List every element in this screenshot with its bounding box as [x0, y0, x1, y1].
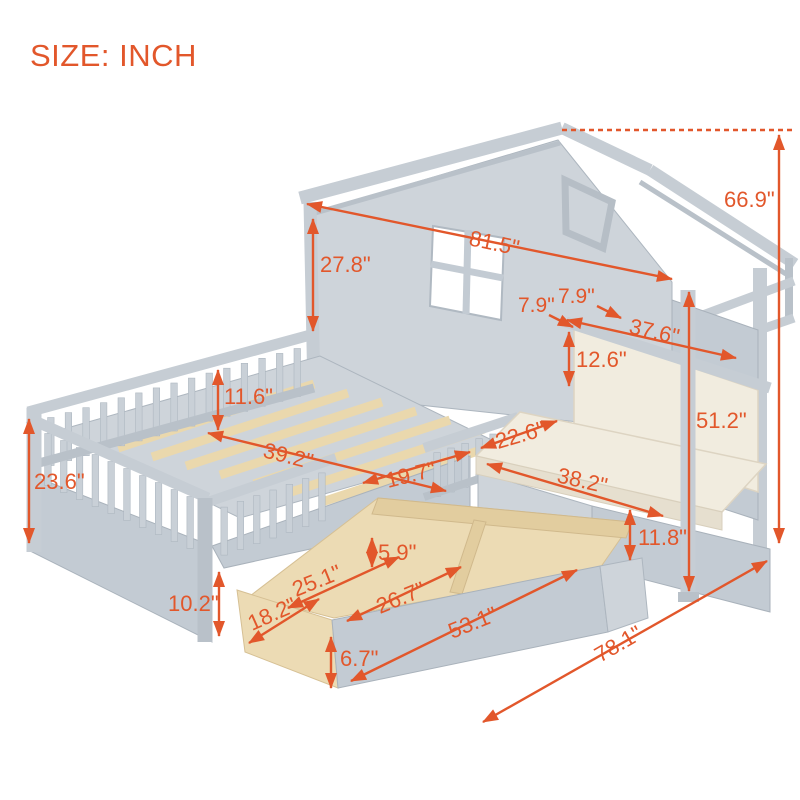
- dim-shelf-depth-a: 7.9": [518, 294, 555, 317]
- rail-baluster: [108, 462, 115, 514]
- rail-baluster: [319, 473, 326, 521]
- dim-backrest-height: 12.6": [576, 347, 627, 372]
- dim-bench-height: 51.2": [696, 408, 747, 433]
- dim-bench-base-height: 11.8": [638, 525, 687, 550]
- rail-baluster: [92, 455, 99, 507]
- drawer-right-cap: [600, 558, 648, 632]
- rail-baluster: [124, 469, 131, 521]
- rail-baluster: [286, 484, 293, 532]
- product-dimension-diagram: SIZE: INCH: [0, 0, 800, 800]
- dim-rail-height: 11.6": [224, 384, 273, 409]
- rail-baluster: [187, 497, 194, 549]
- rail-baluster: [270, 490, 277, 538]
- dim-clearance-height: 10.2": [168, 591, 219, 616]
- rail-baluster: [254, 496, 261, 544]
- rail-baluster: [302, 479, 309, 527]
- bed-diagram-illustration: 66.9" 81.5" 27.8" 7.9" 7.9" 37.6" 12.6" …: [0, 0, 800, 800]
- roof-beam-right: [650, 170, 795, 264]
- rail-baluster: [155, 483, 162, 535]
- dim-gable-height: 27.8": [320, 252, 371, 277]
- dim-overall-height: 66.9": [724, 187, 775, 212]
- dim-shelf-depth-b: 7.9": [558, 285, 595, 308]
- rail-baluster: [171, 490, 178, 542]
- dim-drawer-inner-height: 5.9": [378, 540, 416, 565]
- rail-baluster: [237, 501, 244, 549]
- dim-drawer-front-height: 6.7": [340, 646, 378, 671]
- bed-base-panel-left: [28, 474, 212, 642]
- rail-baluster: [140, 476, 147, 528]
- dim-side-height: 23.6": [34, 469, 85, 494]
- rail-baluster: [221, 507, 228, 555]
